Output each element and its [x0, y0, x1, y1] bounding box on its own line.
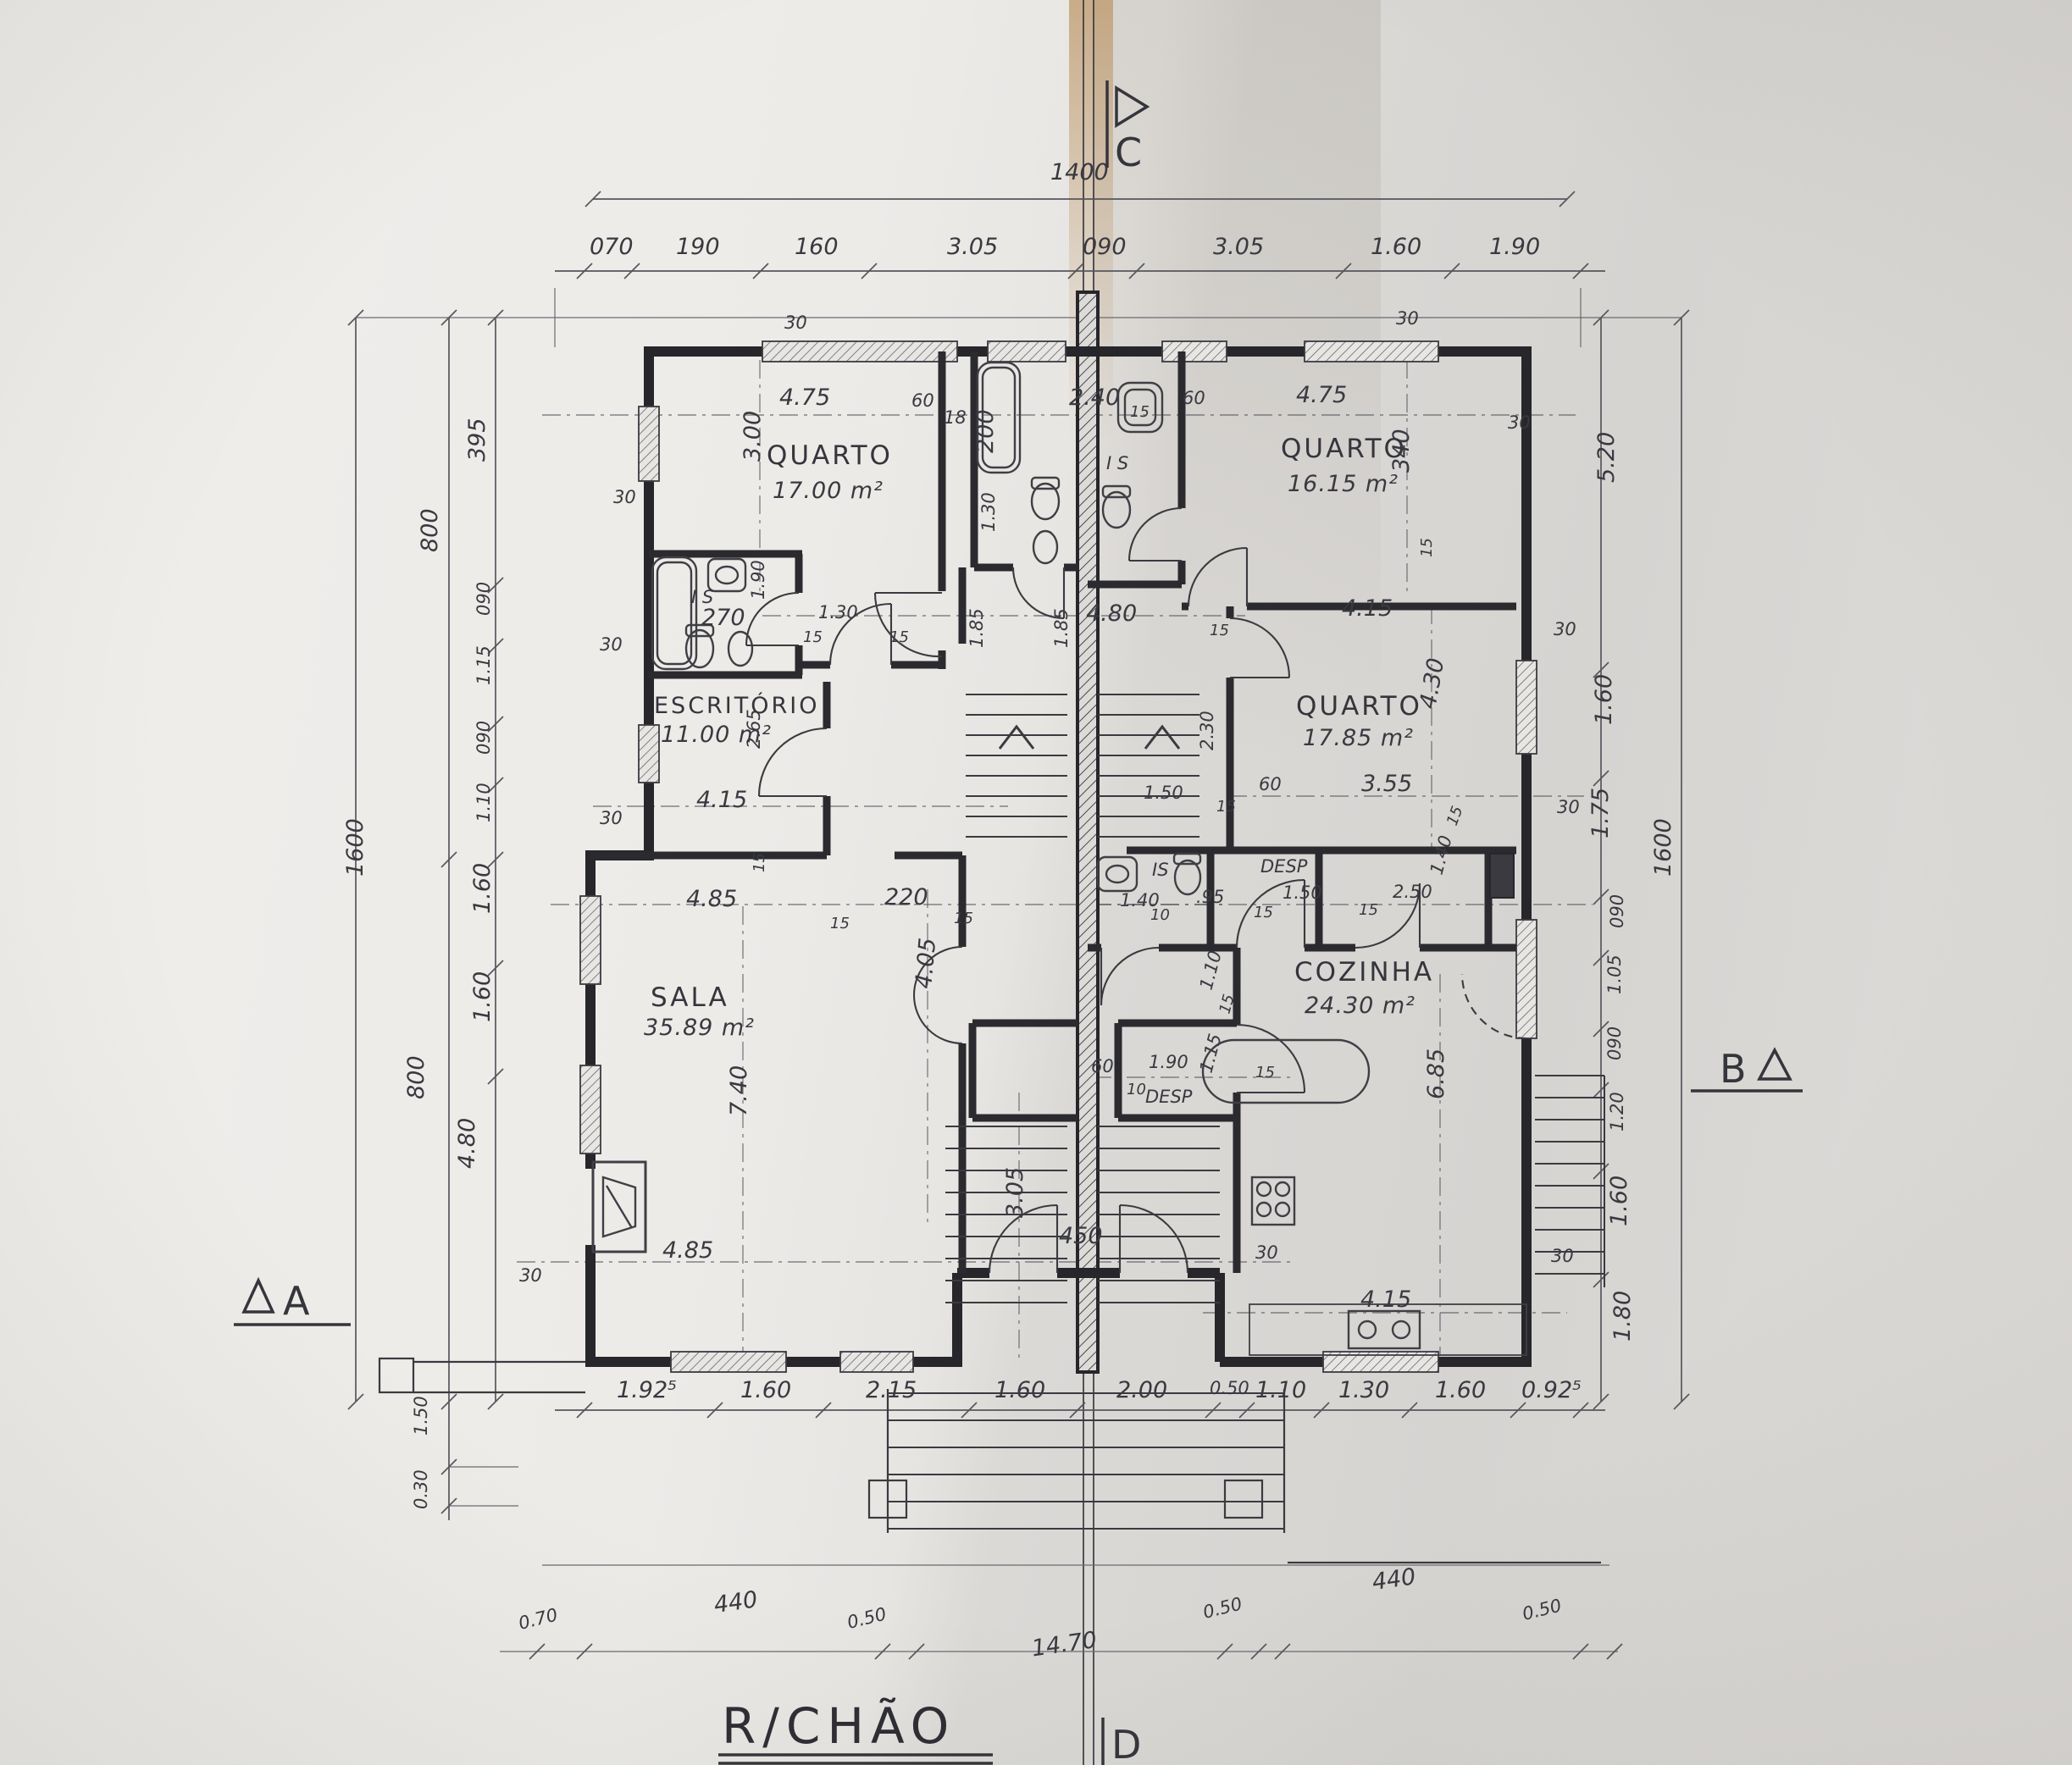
- blueprint-photo: { "title": {"label": "R/CHÃO"}, "markers…: [0, 0, 2072, 1765]
- photo-vignette: [0, 0, 2072, 1765]
